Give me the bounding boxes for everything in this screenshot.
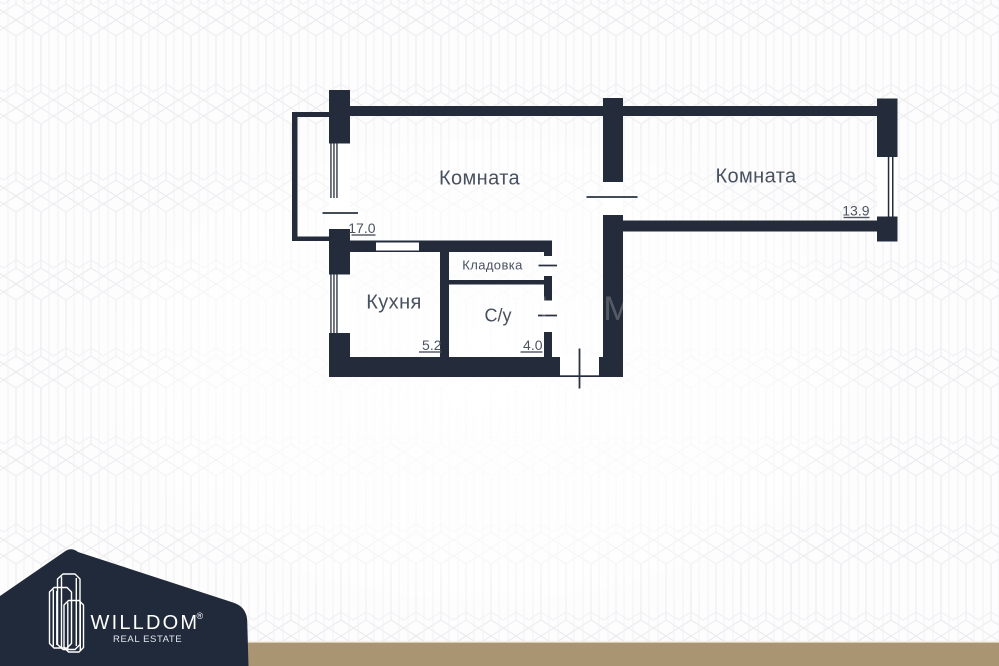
svg-text:Комната: Комната — [439, 168, 521, 190]
svg-text:13.9: 13.9 — [842, 203, 869, 219]
svg-text:4.0: 4.0 — [523, 337, 543, 353]
svg-text:®: ® — [197, 611, 204, 621]
svg-text:17.0: 17.0 — [348, 220, 375, 236]
svg-text:Кухня: Кухня — [366, 292, 422, 314]
svg-text:С/у: С/у — [485, 306, 512, 326]
svg-text:REAL ESTATE: REAL ESTATE — [113, 634, 182, 645]
svg-text:5.2: 5.2 — [422, 337, 442, 353]
svg-text:WILLDOM: WILLDOM — [91, 612, 200, 634]
svg-text:Кладовка: Кладовка — [462, 258, 523, 273]
svg-text:Комната: Комната — [715, 166, 797, 188]
